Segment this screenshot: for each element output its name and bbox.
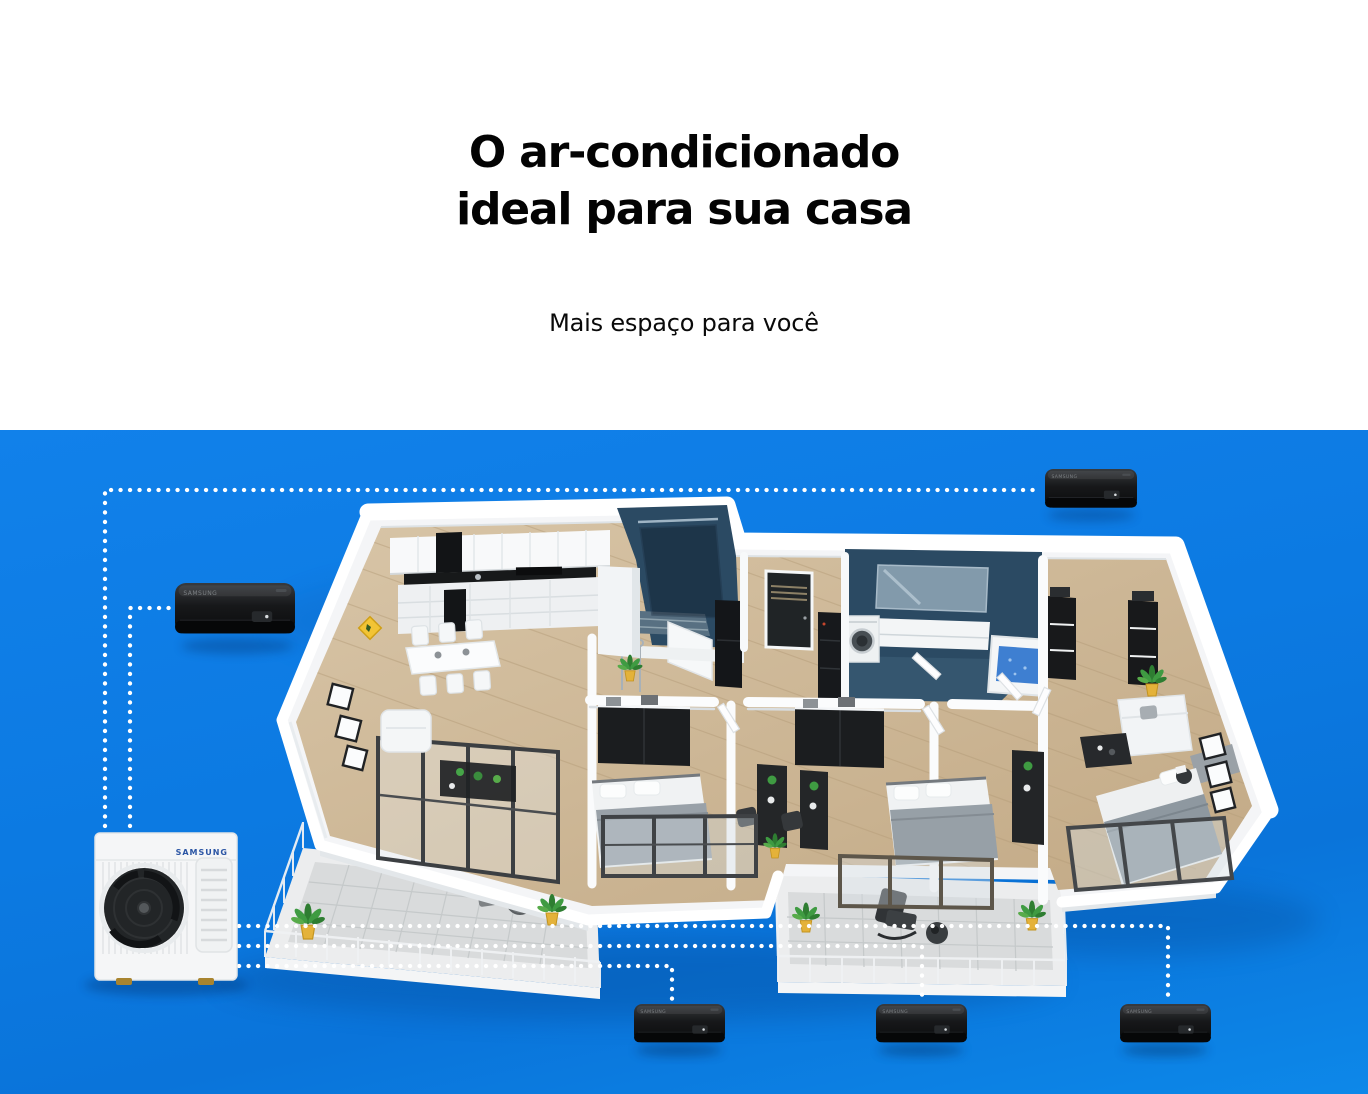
glass-wall-bedroom-1 xyxy=(603,816,756,876)
unit-foot xyxy=(116,978,132,985)
page-title: O ar-condicionado ideal para sua casa xyxy=(0,124,1368,238)
armchair xyxy=(381,710,431,752)
promo-banner: O ar-condicionado ideal para sua casa Ma… xyxy=(0,0,1368,1094)
scene-section: SAMSUNG xyxy=(0,430,1368,1094)
master-bathroom xyxy=(845,549,1050,702)
cooktop xyxy=(516,567,562,576)
title-line-1: O ar-condicionado xyxy=(469,127,899,178)
outdoor-condenser-unit: SAMSUNG xyxy=(84,833,248,996)
terrarium-table xyxy=(440,760,516,802)
glass-wall-bedroom-3 xyxy=(1068,818,1232,890)
floor-plan xyxy=(220,505,1320,1020)
indoor-unit-top-right xyxy=(1045,469,1137,522)
sofa xyxy=(1118,695,1192,756)
hall-cabinet xyxy=(818,612,842,700)
side-vent xyxy=(196,858,232,952)
range-hood xyxy=(436,532,462,573)
refrigerator xyxy=(715,600,742,688)
indoor-unit-bottom-left xyxy=(634,1004,725,1057)
indoor-unit-bottom-middle xyxy=(876,1004,967,1057)
coffee-table xyxy=(1080,733,1132,768)
line-to-left-unit xyxy=(130,608,172,826)
unit-foot xyxy=(198,978,214,985)
samsung-logo: SAMSUNG xyxy=(176,848,228,857)
hero-section: O ar-condicionado ideal para sua casa Ma… xyxy=(0,0,1368,430)
bathroom-mirror xyxy=(876,565,988,612)
washing-machine xyxy=(845,616,879,662)
subtitle: Mais espaço para você xyxy=(0,308,1368,338)
indoor-unit-bottom-right xyxy=(1120,1004,1211,1057)
indoor-unit-left xyxy=(175,583,295,654)
glass-wall-master-bedroom xyxy=(840,856,992,908)
scene-illustration: SAMSUNG xyxy=(0,430,1368,1094)
entry-door xyxy=(766,571,812,649)
fan-grille xyxy=(101,865,187,951)
bed-2 xyxy=(886,778,998,867)
title-line-2: ideal para sua casa xyxy=(456,184,912,235)
